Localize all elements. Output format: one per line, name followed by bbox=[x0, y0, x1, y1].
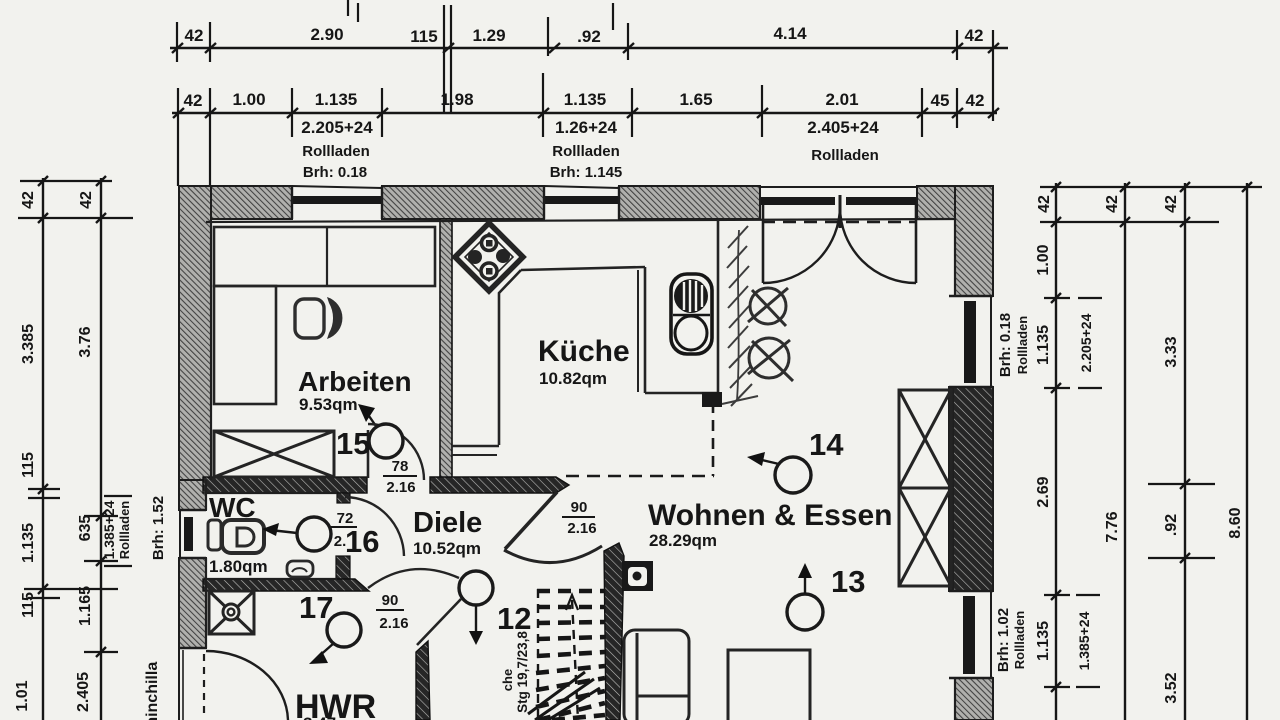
svg-text:4.14: 4.14 bbox=[773, 24, 807, 43]
svg-text:7.76: 7.76 bbox=[1104, 511, 1121, 542]
svg-text:45: 45 bbox=[931, 91, 950, 110]
svg-text:42: 42 bbox=[1036, 195, 1053, 213]
svg-text:Rollladen: Rollladen bbox=[1012, 611, 1027, 670]
svg-text:Rollladen: Rollladen bbox=[552, 143, 620, 160]
svg-text:2.405+24: 2.405+24 bbox=[807, 118, 879, 137]
svg-text:115: 115 bbox=[410, 27, 437, 46]
svg-text:3.52: 3.52 bbox=[1163, 672, 1180, 703]
svg-text:.92: .92 bbox=[577, 27, 601, 46]
svg-text:Rollladen: Rollladen bbox=[811, 147, 879, 164]
svg-text:10.52qm: 10.52qm bbox=[413, 539, 481, 558]
svg-text:28.29qm: 28.29qm bbox=[649, 531, 717, 550]
svg-text:Brh: 1.145: Brh: 1.145 bbox=[550, 164, 623, 181]
svg-text:Brh: 1.52: Brh: 1.52 bbox=[150, 496, 167, 560]
svg-text:Küche: Küche bbox=[538, 335, 630, 368]
svg-text:2.16: 2.16 bbox=[379, 615, 408, 632]
svg-text:3.47qm: 3.47qm bbox=[303, 714, 362, 720]
svg-text:2.16: 2.16 bbox=[386, 479, 415, 496]
svg-text:1.135: 1.135 bbox=[564, 90, 607, 109]
svg-text:115: 115 bbox=[20, 452, 37, 478]
svg-text:1.00: 1.00 bbox=[232, 90, 265, 109]
svg-text:1.65: 1.65 bbox=[679, 90, 712, 109]
svg-text:42: 42 bbox=[185, 26, 204, 45]
svg-text:13: 13 bbox=[831, 564, 865, 599]
svg-text:Brh: 1.02: Brh: 1.02 bbox=[995, 608, 1012, 672]
svg-text:1.135: 1.135 bbox=[1035, 621, 1052, 661]
svg-text:90: 90 bbox=[571, 499, 588, 516]
svg-text:1.00: 1.00 bbox=[1035, 244, 1052, 275]
svg-text:42: 42 bbox=[965, 26, 984, 45]
svg-text:42: 42 bbox=[78, 191, 95, 209]
svg-text:1.29: 1.29 bbox=[472, 26, 505, 45]
svg-text:Stg 19,7/23,8: Stg 19,7/23,8 bbox=[515, 631, 530, 713]
svg-text:3.33: 3.33 bbox=[1163, 336, 1180, 367]
svg-text:8.60: 8.60 bbox=[1227, 507, 1244, 538]
svg-text:2.16: 2.16 bbox=[567, 520, 596, 537]
svg-text:42: 42 bbox=[20, 191, 37, 209]
svg-text:.92: .92 bbox=[1163, 514, 1180, 536]
svg-text:90: 90 bbox=[382, 592, 399, 609]
svg-text:42: 42 bbox=[184, 91, 203, 110]
svg-text:1.135: 1.135 bbox=[315, 90, 358, 109]
svg-text:Arbeiten: Arbeiten bbox=[298, 366, 412, 397]
svg-text:Diele: Diele bbox=[413, 507, 482, 539]
svg-text:2.01: 2.01 bbox=[825, 90, 858, 109]
svg-text:635: 635 bbox=[77, 515, 94, 542]
svg-text:42: 42 bbox=[1104, 195, 1121, 213]
svg-text:1.165: 1.165 bbox=[77, 586, 94, 626]
svg-text:115: 115 bbox=[20, 592, 37, 618]
svg-text:42: 42 bbox=[1163, 195, 1180, 213]
svg-text:3.385: 3.385 bbox=[20, 324, 37, 364]
svg-text:Rollladen: Rollladen bbox=[117, 501, 132, 560]
svg-text:1.385+24: 1.385+24 bbox=[101, 500, 117, 559]
svg-text:14: 14 bbox=[809, 427, 844, 462]
svg-text:1.01: 1.01 bbox=[14, 680, 31, 711]
svg-text:42: 42 bbox=[966, 91, 985, 110]
svg-text:1.80qm: 1.80qm bbox=[209, 557, 268, 576]
svg-text:1.135: 1.135 bbox=[20, 523, 37, 563]
svg-text:Wohnen & Essen: Wohnen & Essen bbox=[648, 499, 892, 532]
svg-text:2.205+24: 2.205+24 bbox=[301, 118, 373, 137]
svg-text:3.76: 3.76 bbox=[77, 326, 94, 357]
svg-text:12: 12 bbox=[497, 601, 531, 636]
svg-text:78: 78 bbox=[392, 458, 409, 475]
svg-text:15: 15 bbox=[336, 426, 370, 461]
svg-text:Brh: 0.18: Brh: 0.18 bbox=[303, 164, 367, 181]
svg-text:che: che bbox=[500, 669, 515, 691]
svg-text:Rollladen: Rollladen bbox=[1015, 316, 1030, 375]
svg-text:2.69: 2.69 bbox=[1035, 476, 1052, 507]
svg-text:16: 16 bbox=[345, 524, 379, 559]
svg-text:1.98: 1.98 bbox=[440, 90, 473, 109]
svg-text:10.82qm: 10.82qm bbox=[539, 369, 607, 388]
svg-text:1.26+24: 1.26+24 bbox=[555, 118, 617, 137]
svg-text:Chinchilla: Chinchilla bbox=[144, 662, 161, 720]
svg-text:2.205+24: 2.205+24 bbox=[1078, 313, 1094, 372]
svg-text:Brh: 0.18: Brh: 0.18 bbox=[997, 313, 1014, 377]
svg-text:2.405: 2.405 bbox=[75, 672, 92, 712]
svg-text:Rollladen: Rollladen bbox=[302, 143, 370, 160]
svg-text:2.90: 2.90 bbox=[310, 25, 343, 44]
svg-text:9.53qm: 9.53qm bbox=[299, 395, 358, 414]
svg-text:17: 17 bbox=[299, 590, 333, 625]
svg-text:1.135: 1.135 bbox=[1035, 325, 1052, 365]
svg-text:1.385+24: 1.385+24 bbox=[1076, 611, 1092, 670]
